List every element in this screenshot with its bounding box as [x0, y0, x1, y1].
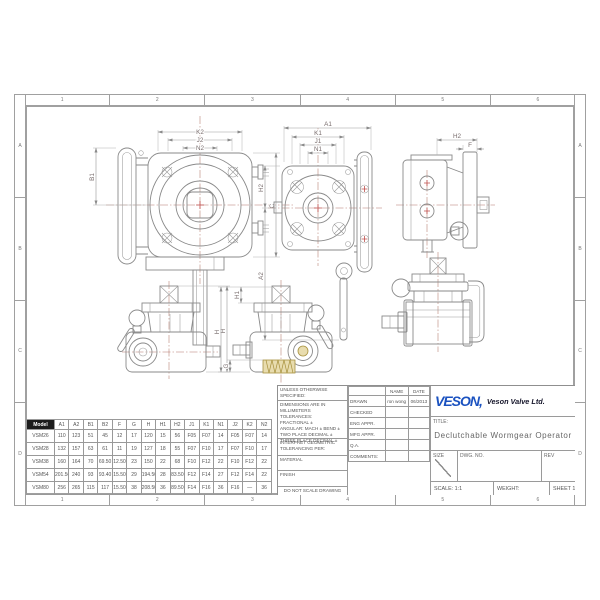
- table-cell: F05: [185, 430, 199, 443]
- table-cell: 61: [98, 443, 112, 456]
- notes-unless: UNLESS OTHERWISE SPECIFIED:: [278, 386, 347, 401]
- table-cell: F12: [185, 469, 199, 482]
- table-cell: 110: [55, 430, 69, 443]
- table-cell: 36: [257, 482, 272, 495]
- approval-row: ENG APPR.: [349, 418, 430, 429]
- table-cell: VSM26: [27, 430, 55, 443]
- column-header: A2: [69, 420, 83, 430]
- table-cell: 29: [127, 469, 141, 482]
- table-cell: 132: [55, 443, 69, 456]
- title-box: TITLE: Declutchable Wormgear Operator: [431, 417, 575, 451]
- table-cell: F10: [185, 456, 199, 469]
- right-elevation-view: [233, 280, 334, 384]
- table-cell: 15: [156, 430, 170, 443]
- notes-do-not-scale: DO NOT SCALE DRAWING: [278, 487, 347, 495]
- column-header: J2: [228, 420, 242, 430]
- table-cell: VSM54: [27, 469, 55, 482]
- table-cell: 150: [141, 456, 155, 469]
- table-cell: 22: [156, 456, 170, 469]
- date-header: DATE: [408, 387, 429, 396]
- column-header: Model: [27, 420, 55, 430]
- table-cell: 12.50: [112, 456, 126, 469]
- table-cell: 12: [112, 430, 126, 443]
- table-cell: 17: [257, 443, 272, 456]
- dim-label: B1: [89, 173, 96, 181]
- drawing-title: Declutchable Wormgear Operator: [431, 431, 575, 440]
- table-row: VSM381601647069.5012.50231502268F10F1222…: [27, 456, 272, 469]
- table-cell: F05: [228, 430, 242, 443]
- table-cell: 83.50: [170, 469, 184, 482]
- table-cell: 63: [83, 443, 97, 456]
- dim-label: A1: [324, 121, 332, 128]
- approval-cell: [385, 429, 408, 440]
- table-cell: F07: [242, 430, 256, 443]
- table-cell: 93.40: [98, 469, 112, 482]
- approval-cell: [385, 440, 408, 451]
- approval-row: Q.A.: [349, 440, 430, 451]
- table-cell: F12: [199, 456, 213, 469]
- size-dwg-rev-row: SIZE DWG. NO. REV: [431, 451, 575, 482]
- table-cell: 157: [69, 443, 83, 456]
- table-cell: F07: [185, 443, 199, 456]
- dim-label: C: [269, 203, 276, 208]
- approval-cell: DRAWN: [349, 396, 386, 407]
- company-logo-row: VESON, Veson Valve Ltd.: [431, 386, 575, 417]
- dim-label: G: [223, 363, 230, 368]
- table-cell: F14: [199, 469, 213, 482]
- column-header: B2: [98, 420, 112, 430]
- table-cell: F14: [242, 469, 256, 482]
- table-cell: 93: [83, 469, 97, 482]
- table-cell: 123: [69, 430, 83, 443]
- table-cell: 265: [69, 482, 83, 495]
- rev-box: REV: [542, 451, 575, 481]
- approval-cell: MFG APPR.: [349, 429, 386, 440]
- table-cell: 19: [127, 443, 141, 456]
- title-label: TITLE:: [433, 419, 448, 425]
- approval-cell: [385, 418, 408, 429]
- approval-cell: [385, 407, 408, 418]
- table-cell: 18: [156, 443, 170, 456]
- table-cell: 160: [55, 456, 69, 469]
- dim-label: F: [468, 142, 472, 149]
- table-header-row: ModelA1A2B1B2FGHH1H2J1K1N1J2K2N2: [27, 420, 272, 430]
- table-cell: F16: [228, 482, 242, 495]
- table-cell: 120: [141, 430, 155, 443]
- table-cell: 23: [127, 456, 141, 469]
- table-cell: 15.50: [112, 482, 126, 495]
- table-cell: F10: [199, 443, 213, 456]
- approval-cell: [385, 451, 408, 462]
- table-cell: 22: [257, 456, 272, 469]
- column-header: H1: [156, 420, 170, 430]
- table-cell: 45: [98, 430, 112, 443]
- table-cell: VSM38: [27, 456, 55, 469]
- table-cell: 127: [141, 443, 155, 456]
- table-cell: 69.50: [98, 456, 112, 469]
- approval-cell: CHECKED: [349, 407, 386, 418]
- left-elevation-view: [117, 281, 220, 379]
- approval-row: MFG APPR.: [349, 429, 430, 440]
- side-view: [396, 152, 495, 258]
- column-header: G: [127, 420, 141, 430]
- side-view-dimensions: H2 F: [437, 133, 484, 155]
- approval-cell: Q.A.: [349, 440, 386, 451]
- table-cell: 201.50: [55, 469, 69, 482]
- notes-material: MATERIAL: [278, 456, 347, 471]
- approval-cell: ron wong: [385, 396, 408, 407]
- dim-label: A2: [258, 272, 265, 280]
- size-box: SIZE: [431, 451, 458, 481]
- table-row: VSM8025626511511715.5038208.503689.50F14…: [27, 482, 272, 495]
- dim-label: H: [214, 329, 221, 334]
- table-cell: 194.50: [141, 469, 155, 482]
- approval-row: DRAWNron wong06/2013: [349, 396, 430, 407]
- table-cell: F07: [199, 430, 213, 443]
- table-cell: 17: [213, 443, 227, 456]
- table-cell: 38: [127, 482, 141, 495]
- column-header: A1: [55, 420, 69, 430]
- column-header: N1: [213, 420, 227, 430]
- table-cell: 36: [213, 482, 227, 495]
- approval-cell: [408, 418, 429, 429]
- column-header: J1: [185, 420, 199, 430]
- table-cell: 115: [83, 482, 97, 495]
- table-cell: F16: [199, 482, 213, 495]
- dim-label: K1: [314, 130, 322, 137]
- table-cell: 36: [156, 482, 170, 495]
- weight-label: WEIGHT:: [494, 482, 550, 495]
- table-row: VSM26110123514512171201556F05F0714F05F07…: [27, 430, 272, 443]
- notes-finish: FINISH: [278, 471, 347, 487]
- dim-label: N2: [196, 145, 205, 152]
- approvals-column: NAME DATE DRAWNron wong06/2013CHECKEDENG…: [348, 386, 430, 495]
- note-line: TOLERANCING PER:: [280, 446, 345, 452]
- dim-label: K2: [196, 129, 204, 136]
- approval-cell: [408, 440, 429, 451]
- table-cell: 22: [213, 456, 227, 469]
- approval-cell: [408, 451, 429, 462]
- title-block: UNLESS OTHERWISE SPECIFIED: DIMENSIONS A…: [277, 385, 575, 495]
- dim-label: H1: [234, 290, 241, 299]
- sheet-number: SHEET 1 OF 1: [550, 482, 575, 495]
- table-cell: 68: [170, 456, 184, 469]
- table-row: VSM28132157636111191271855F07F1017F07F10…: [27, 443, 272, 456]
- name-header: NAME: [385, 387, 408, 396]
- size-slash: [435, 459, 451, 477]
- column-header: K1: [199, 420, 213, 430]
- table-row: VSM54201.502409393.4015.5029194.502883.5…: [27, 469, 272, 482]
- table-cell: 256: [55, 482, 69, 495]
- approval-row: CHECKED: [349, 407, 430, 418]
- table-cell: 14: [213, 430, 227, 443]
- approvals-header: NAME DATE: [349, 387, 430, 396]
- veson-logo: VESON,: [435, 393, 482, 409]
- column-header: K2: [242, 420, 256, 430]
- title-column: VESON, Veson Valve Ltd. TITLE: Declutcha…: [430, 386, 575, 495]
- approval-cell: 06/2013: [408, 396, 429, 407]
- table-cell: F10: [242, 443, 256, 456]
- dim-label: J1: [315, 138, 322, 145]
- column-header: N2: [257, 420, 272, 430]
- dwg-no-box: DWG. NO.: [458, 451, 542, 481]
- table-cell: 51: [83, 430, 97, 443]
- approval-cell: COMMENTS:: [349, 451, 386, 462]
- back-view: [268, 128, 382, 340]
- table-cell: 240: [69, 469, 83, 482]
- rear-view: [382, 252, 484, 352]
- approval-cell: [408, 429, 429, 440]
- table-cell: VSM80: [27, 482, 55, 495]
- table-cell: 11: [112, 443, 126, 456]
- table-cell: 22: [257, 469, 272, 482]
- left-elevation-dimensions: H: [179, 286, 230, 372]
- table-cell: 56: [170, 430, 184, 443]
- approval-cell: ENG APPR.: [349, 418, 386, 429]
- table-cell: —: [242, 482, 256, 495]
- column-header: F: [112, 420, 126, 430]
- table-cell: 89.50: [170, 482, 184, 495]
- dim-label: H2: [258, 183, 265, 192]
- notes-column: UNLESS OTHERWISE SPECIFIED: DIMENSIONS A…: [278, 386, 348, 495]
- table-cell: 27: [213, 469, 227, 482]
- table-cell: F10: [228, 456, 242, 469]
- table-cell: VSM28: [27, 443, 55, 456]
- table-cell: 14: [257, 430, 272, 443]
- table-cell: 55: [170, 443, 184, 456]
- drawing-views: K2 J2 N2 B1 C: [0, 0, 600, 600]
- table-cell: F12: [242, 456, 256, 469]
- dim-label: J2: [197, 137, 204, 144]
- table-cell: 208.50: [141, 482, 155, 495]
- column-header: B1: [83, 420, 97, 430]
- table-cell: 70: [83, 456, 97, 469]
- dimension-table: ModelA1A2B1B2FGHH1H2J1K1N1J2K2N2VSM26110…: [26, 419, 272, 495]
- table-cell: 15.50: [112, 469, 126, 482]
- table-cell: F14: [185, 482, 199, 495]
- note-line: DIMENSIONS ARE IN MILLIMETERS: [280, 402, 345, 414]
- notes-interpret: INTERPRET GEOMETRIC TOLERANCING PER:: [278, 439, 347, 455]
- dim-label: H2: [453, 133, 462, 140]
- engineering-drawing-sheet: { "sheet": { "zone_cols": ["1","2","3","…: [0, 0, 600, 600]
- table-cell: 164: [69, 456, 83, 469]
- table-cell: 28: [156, 469, 170, 482]
- dim-label: N1: [314, 146, 323, 153]
- scale-value: SCALE: 1:1: [431, 482, 494, 495]
- table-cell: F07: [228, 443, 242, 456]
- column-header: H: [141, 420, 155, 430]
- notes-tolerances: DIMENSIONS ARE IN MILLIMETERS TOLERANCES…: [278, 401, 347, 439]
- company-name: Veson Valve Ltd.: [487, 397, 545, 406]
- table-cell: 17: [127, 430, 141, 443]
- approval-cell: [408, 407, 429, 418]
- column-header: H2: [170, 420, 184, 430]
- table-cell: 117: [98, 482, 112, 495]
- approval-row: COMMENTS:: [349, 451, 430, 462]
- table-cell: F12: [228, 469, 242, 482]
- scale-row: SCALE: 1:1 WEIGHT: SHEET 1 OF 1: [431, 482, 575, 495]
